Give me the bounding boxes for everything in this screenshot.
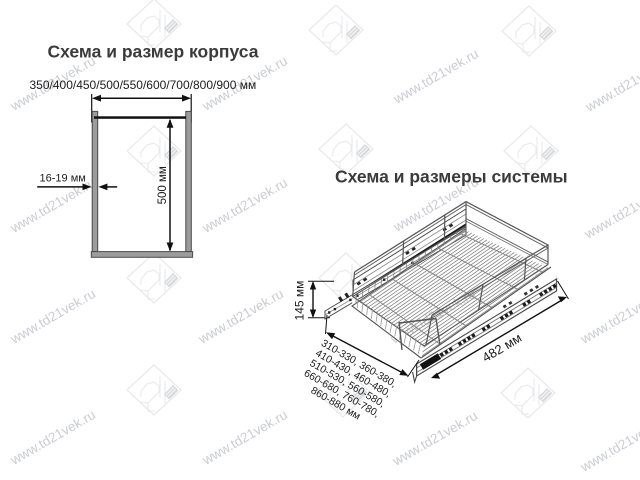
svg-text:350/400/450/500/550/600/700/80: 350/400/450/500/550/600/700/800/900 мм	[30, 78, 257, 92]
svg-text:145 мм: 145 мм	[293, 281, 307, 321]
svg-text:Схема и размер корпуса: Схема и размер корпуса	[48, 42, 259, 62]
svg-text:Схема и размеры системы: Схема и размеры системы	[335, 167, 568, 187]
svg-text:500 мм: 500 мм	[157, 166, 169, 204]
svg-text:16-19 мм: 16-19 мм	[40, 172, 86, 184]
